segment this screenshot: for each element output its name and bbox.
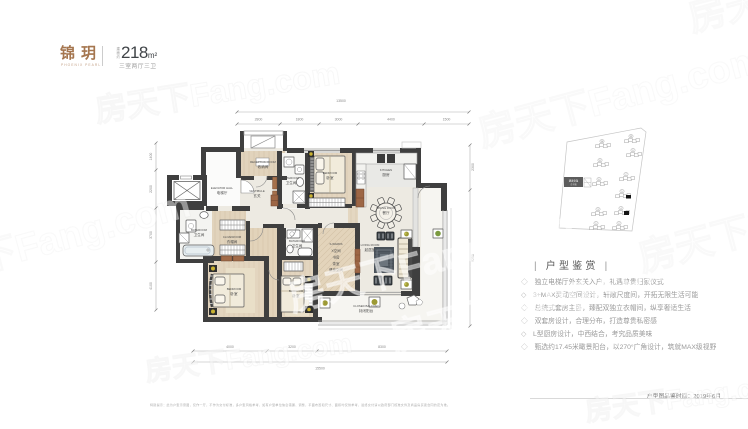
svg-text:卫生间: 卫生间 bbox=[194, 232, 205, 237]
svg-text:BEDROOM: BEDROOM bbox=[227, 287, 242, 291]
svg-text:VESTIBULE: VESTIBULE bbox=[249, 189, 265, 193]
svg-text:KITCHEN: KITCHEN bbox=[380, 168, 392, 172]
svg-text:茶室: 茶室 bbox=[333, 261, 341, 266]
svg-text:3200: 3200 bbox=[288, 345, 296, 349]
svg-text:8300: 8300 bbox=[378, 345, 386, 349]
svg-text:4400: 4400 bbox=[387, 118, 395, 122]
svg-text:1500: 1500 bbox=[443, 118, 451, 122]
svg-text:LIVING ROOM: LIVING ROOM bbox=[361, 243, 380, 247]
svg-text:3000: 3000 bbox=[335, 118, 343, 122]
svg-text:BATHROOM: BATHROOM bbox=[191, 228, 208, 232]
svg-text:BATHROOM: BATHROOM bbox=[289, 239, 306, 243]
svg-text:玄关: 玄关 bbox=[253, 193, 261, 198]
svg-text:9250: 9250 bbox=[471, 254, 475, 262]
svg-text:BEDROOM: BEDROOM bbox=[323, 171, 338, 175]
svg-text:2200: 2200 bbox=[149, 185, 153, 193]
svg-text:衣帽间: 衣帽间 bbox=[227, 239, 238, 244]
svg-text:ELEVATOR HALL: ELEVATOR HALL bbox=[211, 186, 234, 190]
svg-text:RECEPTION ROOM: RECEPTION ROOM bbox=[250, 160, 276, 164]
svg-text:卫生间: 卫生间 bbox=[292, 243, 303, 248]
svg-text:4100: 4100 bbox=[149, 282, 153, 290]
svg-text:13500: 13500 bbox=[336, 99, 346, 103]
svg-text:封闭阳台: 封闭阳台 bbox=[359, 308, 374, 313]
svg-text:2300: 2300 bbox=[471, 163, 475, 171]
svg-text:BEDROOM: BEDROOM bbox=[289, 289, 304, 293]
svg-text:CLOSED BALCONY: CLOSED BALCONY bbox=[353, 304, 379, 308]
svg-text:卫生间: 卫生间 bbox=[286, 180, 297, 185]
svg-text:卧室: 卧室 bbox=[230, 291, 238, 296]
svg-text:2800: 2800 bbox=[255, 118, 263, 122]
svg-text:卧室: 卧室 bbox=[292, 293, 300, 298]
svg-text:健身空间: 健身空间 bbox=[329, 267, 343, 272]
svg-text:3700: 3700 bbox=[149, 231, 153, 239]
svg-text:收纳间: 收纳间 bbox=[258, 164, 269, 169]
svg-text:书房: 书房 bbox=[333, 254, 341, 259]
svg-text:4000: 4000 bbox=[226, 345, 234, 349]
svg-text:厨房: 厨房 bbox=[382, 172, 390, 177]
svg-text:S-WARDS: S-WARDS bbox=[329, 242, 342, 246]
svg-text:DINING ROOM: DINING ROOM bbox=[376, 206, 396, 210]
svg-text:1400: 1400 bbox=[149, 153, 153, 161]
svg-text:15500: 15500 bbox=[315, 367, 325, 371]
svg-text:建发央玺: 建发央玺 bbox=[569, 179, 579, 183]
svg-text:X空间: X空间 bbox=[331, 248, 341, 253]
svg-text:卧室: 卧室 bbox=[326, 175, 334, 180]
svg-text:起居室: 起居室 bbox=[365, 247, 376, 252]
svg-text:电梯厅: 电梯厅 bbox=[217, 190, 228, 195]
svg-text:CLOAKROOM: CLOAKROOM bbox=[223, 235, 242, 239]
svg-text:BATHROOM: BATHROOM bbox=[283, 176, 300, 180]
svg-text:餐厅: 餐厅 bbox=[382, 210, 390, 215]
svg-text:1800: 1800 bbox=[296, 118, 304, 122]
